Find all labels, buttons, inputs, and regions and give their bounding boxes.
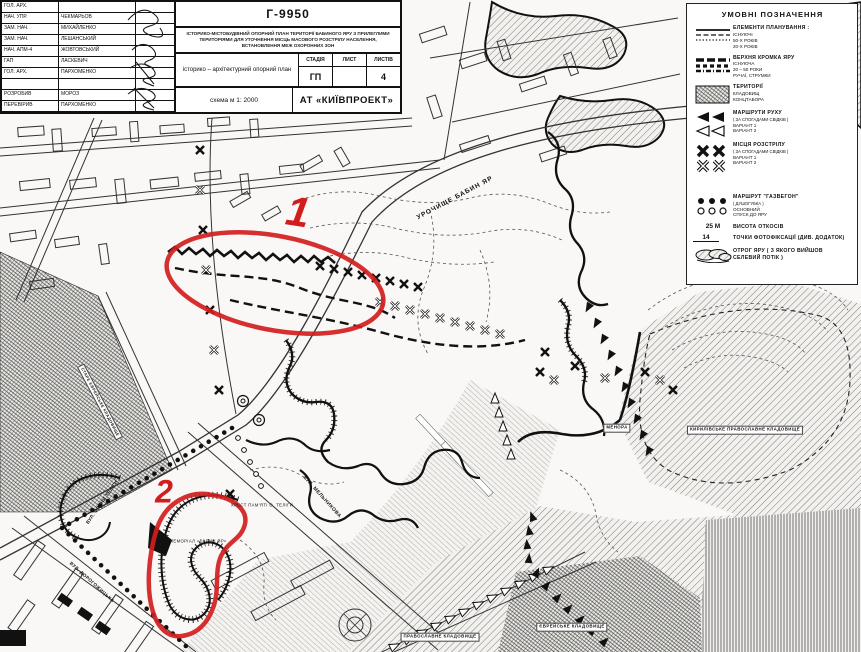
- title-block-roles-table: ГОЛ. АРХ. НАЧ. УПР.ЧЕКМАРЬОВ ЗАМ. НАЧ.МИ…: [2, 2, 176, 112]
- gaswagen-dot-symbols-icon: [693, 194, 733, 218]
- label-teliha-cross: ХРЕСТ ПАМ'ЯТІ О. ТЕЛІГИ: [231, 503, 293, 508]
- legend-photo-points: 14 ТОЧКИ ФОТОФІКСАЦІЇ (ДИВ. ДОДАТОК): [693, 234, 852, 242]
- ravine-edge-symbols-icon: [693, 55, 733, 80]
- label-orthodox-cemetery: ПРАВОСЛАВНЕ КЛАДОВИЩЕ: [401, 633, 480, 642]
- legend-territories: ТЕРИТОРІЇ КЛАДОВИЩКОНЦТАБОРА: [693, 84, 852, 105]
- legend: УМОВНІ ПОЗНАЧЕННЯ ЕЛЕМЕНТИ ПЛАНУВАННЯ : …: [686, 3, 858, 285]
- label-memorial: МЕМОРІАЛ «БАБИН ЯР»: [169, 539, 226, 544]
- document-title: історико – архітектурний опорний план: [176, 54, 299, 86]
- line-style-symbols-icon: [693, 25, 733, 50]
- project-code: Г-9950: [176, 2, 400, 28]
- label-kyrylivske-cemetery: КИРИЛІВСЬКЕ ПРАВОСЛАВНЕ КЛАДОВИЩЕ: [687, 426, 803, 435]
- red-annotation-number-2: 2: [155, 474, 173, 511]
- scheme-scale: схема м 1: 2000: [176, 88, 293, 112]
- title-block: ГОЛ. АРХ. НАЧ. УПР.ЧЕКМАРЬОВ ЗАМ. НАЧ.МИ…: [0, 0, 402, 114]
- route-triangle-symbols-icon: [693, 110, 733, 137]
- stage-col-label: СТАДІЯ: [299, 54, 333, 66]
- legend-ravine-spur: ОТРОГ ЯРУ ( З ЯКОГО ВИЙШОВ СЕЛЕВИЙ ПОТІК…: [693, 246, 852, 263]
- label-menorah: МЕНОРА: [603, 424, 630, 433]
- label-jewish-cemetery: ЄВРЕЙСЬКЕ КЛАДОВИЩЕ: [536, 623, 607, 632]
- sheets-value: 4: [367, 67, 400, 86]
- spur-sketch-icon: [693, 246, 733, 263]
- title-block-main: Г-9950 ІСТОРИКО-МІСТОБУДІВНИЙ ОПОРНИЙ ПЛ…: [176, 2, 400, 112]
- sheet-value: [333, 67, 367, 86]
- legend-slope-height: 25 М ВИСОТА ОТКОСІВ: [693, 223, 852, 230]
- legend-title: УМОВНІ ПОЗНАЧЕННЯ: [693, 10, 852, 19]
- legend-movement-routes: МАРШРУТИ РУХУ ( ЗА СПОГАДАМИ СВІДКІВ ) В…: [693, 110, 852, 137]
- territory-hatch-swatch-icon: [693, 84, 733, 105]
- stage-value: ГП: [299, 67, 333, 86]
- sheets-col-label: ЛИСТІВ: [367, 54, 400, 66]
- project-description: ІСТОРИКО-МІСТОБУДІВНИЙ ОПОРНИЙ ПЛАН ТЕРИ…: [176, 28, 400, 54]
- company-name: АТ «КИЇВПРОЕКТ»: [293, 88, 400, 112]
- legend-execution-sites: МІСЦЯ РОЗСТРІЛУ ( ЗА СПОГАДАМИ СВІДКІВ )…: [693, 142, 852, 173]
- legend-ravine-edge: ВЕРХНЯ КРОМКА ЯРУ ІСНУЮЧА20 – 50 РОКИРУЧ…: [693, 55, 852, 80]
- execution-x-symbols-icon: [693, 142, 733, 173]
- legend-gaswagen-route: МАРШРУТ "ГАЗВЕГОН" ( ДУШОГУБКА ) ОСНОВНИ…: [693, 194, 852, 218]
- scanned-map-page: УРОЧИЩЕ БАБИН ЯР ВУЛ. МЕЛЬНИКОВА ВУЛ. ОЛ…: [0, 0, 861, 652]
- legend-planning-elements: ЕЛЕМЕНТИ ПЛАНУВАННЯ : ІСНУЮЧІ50-Х РОКІВ2…: [693, 25, 852, 50]
- sheet-col-label: ЛИСТ: [333, 54, 367, 66]
